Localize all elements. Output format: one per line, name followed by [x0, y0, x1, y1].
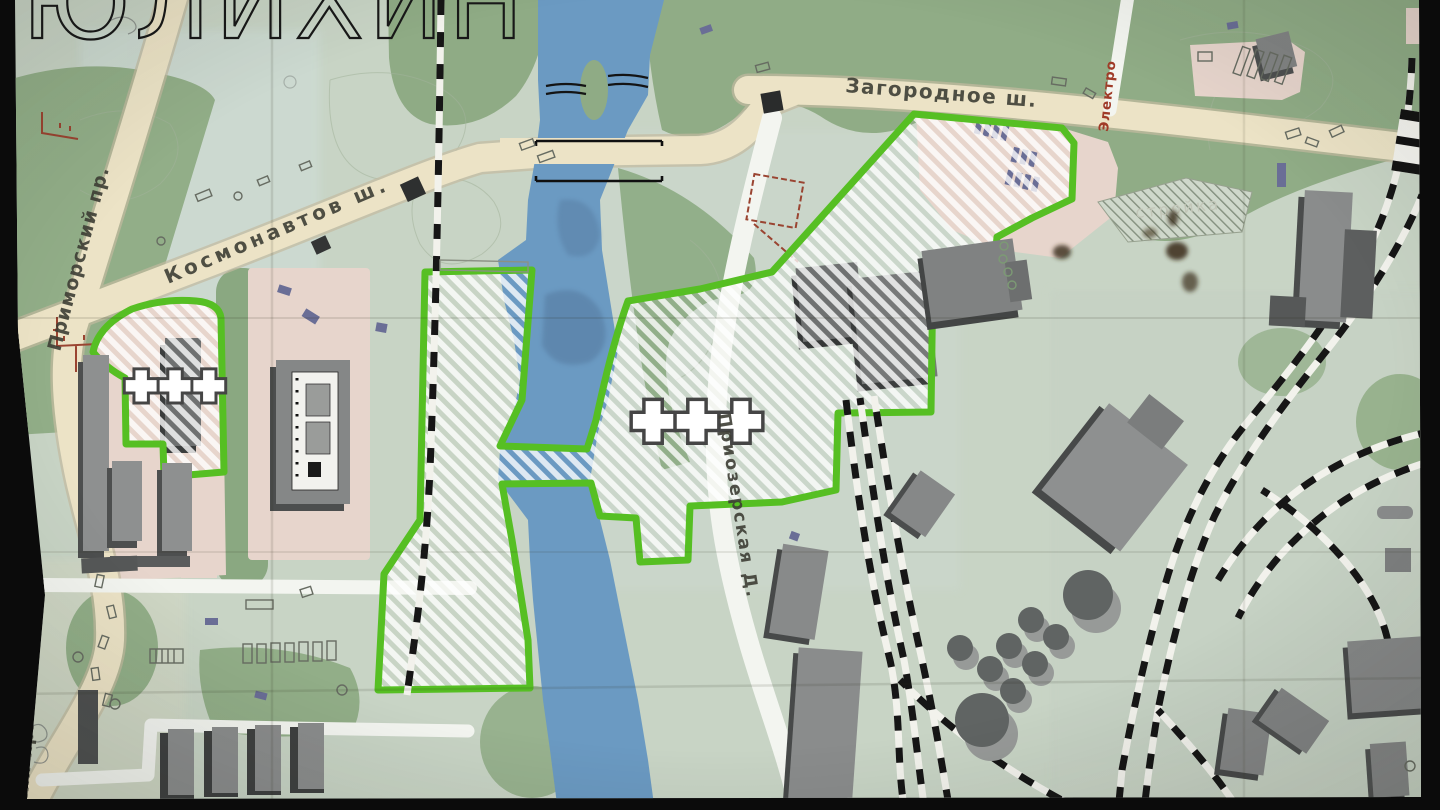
paper-creases [0, 0, 1440, 810]
map-viewport[interactable]: стройка [0, 0, 1440, 810]
city-map: стройка [0, 0, 1440, 810]
